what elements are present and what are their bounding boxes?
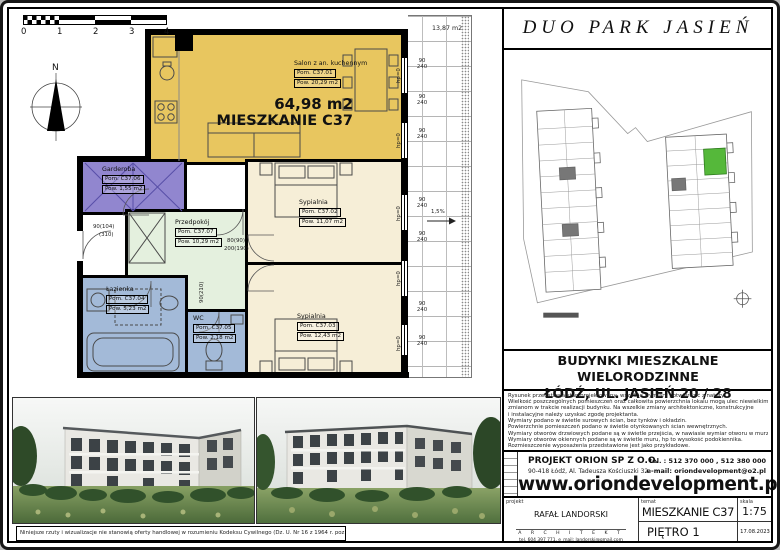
window-dim: 90240 [409,231,435,244]
subject-cell: temat MIESZKANIE C37 [639,498,738,522]
disclaimer: Niniejsze rzuty i wizualizacje nie stano… [16,526,346,541]
note-line: zmianom w trakcie realizacji budynku. Na… [508,405,768,411]
label-garderoba: Garderoba Pom. C37.06 Pow. 1,55 m2 [102,166,145,194]
scale-tick: 2 [93,27,98,37]
window-dim: 90240 [409,128,435,141]
company-website: www.oriondevelopment.pl [518,474,772,495]
architect-cell: projekt RAFAŁ LANDORSKI A R C H I T E K … [504,498,639,542]
window-dim: 90240 [409,197,435,210]
slope-label: 1,5% [431,209,445,215]
label-lazienka: Łazienka Pom. C37.04 Pow. 5,23 m2 [106,286,149,314]
architect-contact: tel. 604 397 771, e_mail: landorski@gmai… [504,538,638,543]
scale-tick: 0 [21,27,26,37]
stamp-strip [504,452,518,496]
wall [77,372,409,378]
hp-label: hp=0 [396,206,402,221]
photo-building-right [256,397,501,524]
label-unit: 64,98 m2 MIESZKANIE C37 [183,96,353,130]
window-dim: 90240 [409,335,435,348]
hp-label: hp=0 [396,133,402,148]
notes-block: Rysunek przedstawia stan projektowany, w… [504,391,772,452]
note-line: Wymiary otworów drzwiowych podane są w ś… [508,431,768,437]
wall [77,212,83,231]
scale-cell: skala 1:75 [738,498,772,522]
project-title-box: DUO PARK JASIEŃ [504,8,772,50]
window [402,123,407,158]
label-salon: Salon z an. kuchennym Pom. C37.01 Pow. 2… [294,60,367,88]
photo-building-left [12,397,255,524]
building-line1: BUDYNKI MIESZKALNE WIELORODZINNE [504,354,772,386]
floor-plan: 0 1 2 3 4 N 13,87 m2 1,5% 90240 9 [3,3,502,395]
door-dim: 80(90) [227,238,245,244]
date-value: 17.08.2023 [740,529,770,535]
window-dim: 90240 [409,58,435,71]
label-wc: WC Pom. C37.05 Pow. 2,18 m2 [193,315,236,343]
label-temat: temat [641,499,656,505]
window-dim: 90240 [409,301,435,314]
north-label: N [52,63,59,73]
wall-windows [401,29,408,378]
site-plan [504,50,772,351]
wall [77,156,151,162]
balcony-area-label: 13,87 m2 [432,26,462,32]
architect-name: RAFAŁ LANDORSKI [504,510,638,519]
wall [77,261,83,378]
building-header: BUDYNKI MIESZKALNE WIELORODZINNE ŁÓDŹ, U… [504,351,772,391]
contact-block: PROJEKT ORION SP Z O.O. 90-418 Łódź, Al.… [504,452,772,498]
north-arrow: N [30,63,82,141]
site-scale-bar [543,313,578,318]
window [402,58,407,93]
label-sypialnia-1: Sypialnia Pom. C37.02 Pow. 11,07 m2 [299,199,346,227]
site-unit-highlight [704,148,727,175]
wall [175,29,193,51]
title-panel: DUO PARK JASIEŃ [502,8,772,542]
label-skala: skala [740,499,753,505]
hp-label: hp=0 [396,271,402,286]
window [402,195,407,230]
window-dim: 90240 [409,94,435,107]
label-projekt: projekt [506,499,524,505]
note-line: Rozmieszczenie wyposażenia przedstawione… [508,443,768,449]
hp-label: hp=0 [396,336,402,351]
architect-title: A R C H I T E K T [516,529,626,536]
window [402,325,407,355]
title-table: projekt RAFAŁ LANDORSKI A R C H I T E K … [504,498,772,542]
site-building-left [537,108,607,292]
door-dim: 90(210) [199,282,205,303]
floor-value: PIĘTRO 1 [639,525,700,539]
window [402,261,407,296]
door-dim: (310) [99,232,114,238]
date-cell: 17.08.2023 [738,522,772,542]
unit-name: MIESZKANIE C37 [183,113,353,130]
hp-label: hp=0 [396,68,402,83]
scale-tick: 1 [57,27,62,37]
label-przedpokoj: Przedpokój Pom. C37.07 Pow. 10,29 m2 [175,219,222,247]
label-sypialnia-2: Sypialnia Pom. C37.03 Pow. 12,43 m2 [297,313,344,341]
unit-area: 64,98 m2 [183,96,353,113]
floor-cell: PIĘTRO 1 [639,522,738,542]
door-dim: 200(190) [224,246,249,252]
company-name: PROJEKT ORION SP Z O.O. [528,456,659,466]
company-tel: tel. : 512 370 000 , 512 380 000 [649,457,766,465]
project-title: DUO PARK JASIEŃ [523,17,754,39]
drawing-sheet: 0 1 2 3 4 N 13,87 m2 1,5% 90240 9 [0,0,780,550]
scale-tick: 4 [164,27,169,37]
site-building-right [666,134,739,269]
wall [77,156,83,218]
scale-bar [23,15,167,25]
site-compass-icon [734,290,752,308]
wall [145,29,151,162]
door-dim: 90(104) [93,224,114,230]
scale-tick: 3 [129,27,134,37]
